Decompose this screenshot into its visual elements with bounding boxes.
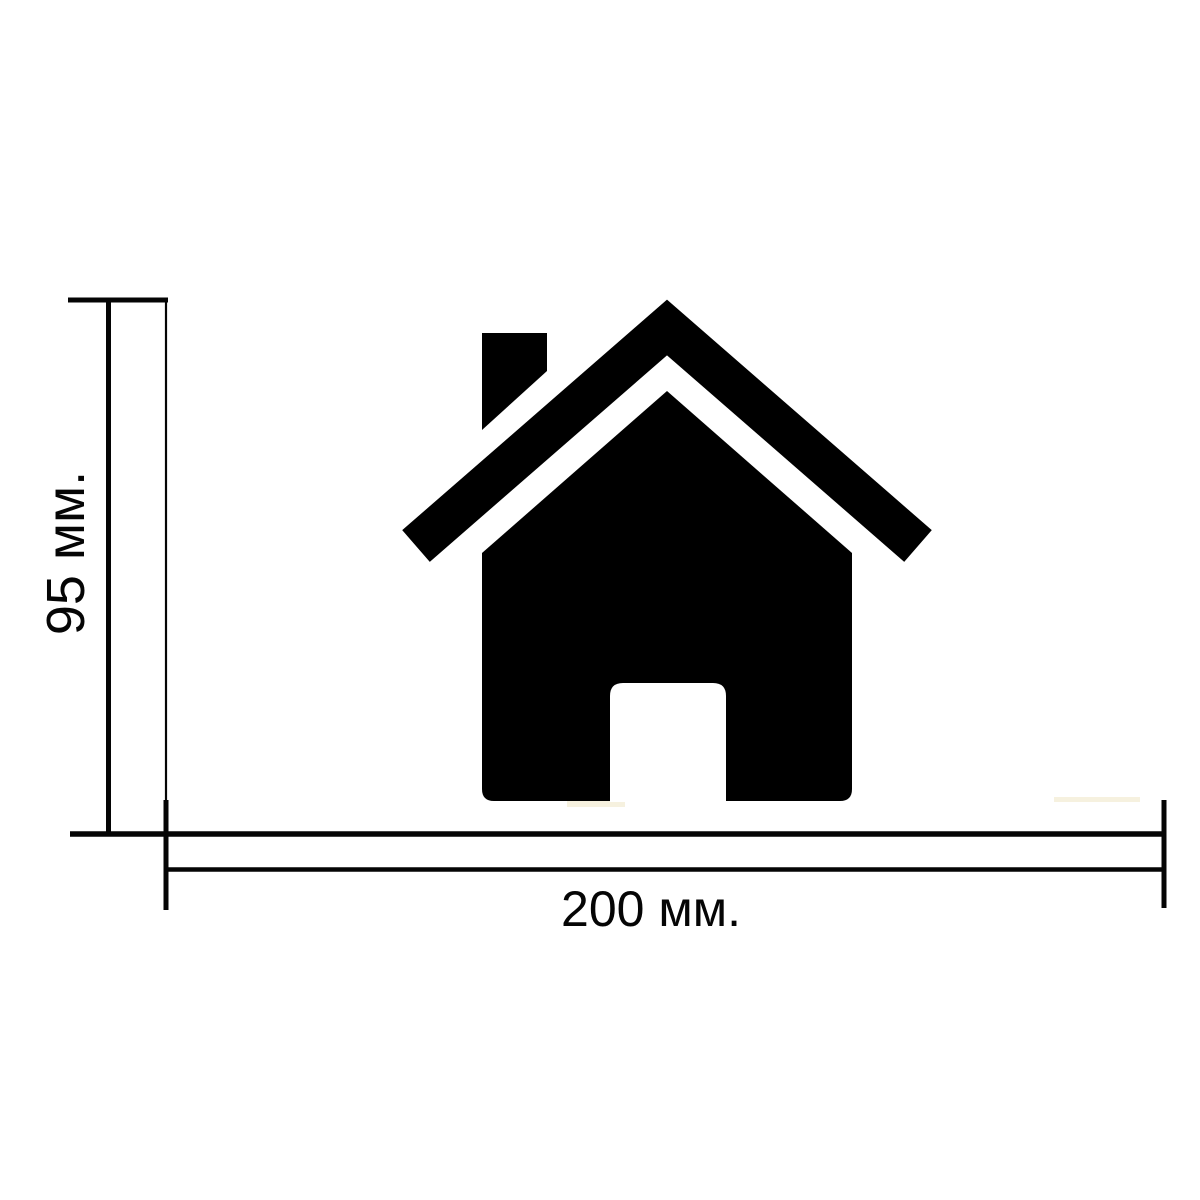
width-label: 200 мм.: [561, 881, 741, 937]
scan-artifact: [1054, 797, 1140, 802]
home-icon-door: [610, 683, 726, 802]
height-label: 95 мм.: [36, 471, 96, 635]
diagram-svg: 95 мм. 200 мм.: [0, 0, 1200, 1200]
home-icon: [416, 328, 918, 803]
dimension-diagram: 95 мм. 200 мм.: [0, 0, 1200, 1200]
